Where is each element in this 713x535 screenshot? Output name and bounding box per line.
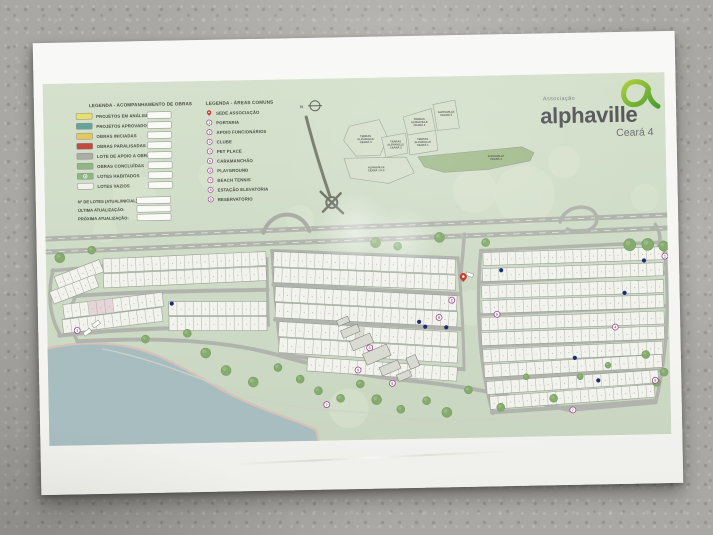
tree: [660, 368, 668, 376]
tree: [550, 394, 558, 402]
legend-areas-label: CLUBE: [217, 139, 232, 144]
legend-obras-label: LOTES HABITADOS: [97, 173, 139, 179]
tree: [497, 403, 505, 411]
tree: [372, 395, 382, 405]
tree: [434, 232, 444, 242]
area-marker-number: 8: [438, 316, 440, 320]
area-marker-number: 5: [496, 313, 498, 317]
tree: [314, 387, 322, 395]
legend-circle-number: 4: [209, 150, 211, 154]
legend-obras-label: LOTES VAZIOS: [97, 183, 130, 189]
legend-circle-number: 9: [210, 198, 212, 202]
legend-circle-number: 3: [209, 140, 211, 144]
site-plan-map: NTERRASALPHAVILLECEARÁ 3TERRASALPHAVILLE…: [43, 72, 672, 446]
overview-parcel-label: ALPHAVILLECEARÁ 1 E 2: [368, 165, 385, 172]
legend-areas-label: APOIO FUNCIONÁRIOS: [216, 129, 266, 135]
area-marker-number: 2: [451, 298, 453, 302]
printed-map-sheet: NTERRASALPHAVILLECEARÁ 3TERRASALPHAVILLE…: [33, 31, 684, 495]
area-marker-number: 6: [391, 382, 393, 386]
legend-areas-label: RESERVATÓRIO: [218, 196, 254, 202]
legend-swatch: [76, 123, 92, 129]
tree: [464, 386, 472, 394]
legend-obras-label: PROJETOS EM ANÁLISE: [96, 113, 149, 119]
tree: [642, 350, 650, 358]
legend-field-label: PRÓXIMA ATUALIZAÇÃO:: [78, 215, 129, 221]
tree: [88, 246, 96, 254]
tree: [523, 374, 529, 380]
legend-areas-label: BEACH TENNIS: [217, 177, 251, 183]
legend-areas-label: SEDE ASSOCIAÇÃO: [216, 110, 260, 116]
tree: [397, 405, 405, 413]
map-print-area: NTERRASALPHAVILLECEARÁ 3TERRASALPHAVILLE…: [43, 72, 672, 446]
area-marker-number: 5: [357, 368, 359, 372]
legend-circle-number: 5: [209, 159, 211, 163]
area-marker-number: 4: [614, 325, 616, 329]
legend-swatch: [76, 113, 92, 119]
tree: [356, 380, 364, 388]
legend-circle-number: 7: [209, 178, 211, 182]
legend-count-box: [148, 142, 172, 149]
tree: [183, 329, 191, 337]
alameda: [267, 259, 268, 325]
lot-block: [169, 316, 267, 330]
legend-areas-label: CARAMANCHÃO: [217, 158, 254, 164]
legend-field-box: [137, 197, 171, 204]
legend-count-box: [148, 172, 172, 179]
tree: [642, 238, 654, 250]
legend-count-box: [147, 132, 171, 139]
legend-count-box: [148, 162, 172, 169]
legend-obras-label: OBRAS CONCLUÍDAS: [97, 163, 144, 169]
area-marker-number: 9: [654, 379, 656, 383]
tree: [371, 238, 381, 248]
legend-circle-number: 6: [209, 169, 211, 173]
photo-of-site-plan: NTERRASALPHAVILLECEARÁ 3TERRASALPHAVILLE…: [0, 0, 713, 535]
area-marker-number: 3: [369, 346, 371, 350]
tree: [659, 241, 669, 251]
logo-association-label: Associação: [543, 96, 575, 103]
tree: [221, 365, 231, 375]
area-marker-number: 1: [76, 329, 78, 333]
legend-obras-label: LOTE DE APOIO A OBRA: [97, 153, 150, 159]
legend-areas-label: PET PLACE: [217, 149, 242, 154]
tree: [423, 397, 431, 405]
area-marker-number: 1: [664, 254, 666, 258]
tree: [482, 238, 490, 246]
logo-region-label: Ceará 4: [616, 126, 654, 139]
legend-areas-label: PLAYGROUND: [217, 168, 248, 174]
legend-areas-label: PORTARIA: [216, 120, 239, 125]
north-label: N: [300, 104, 303, 109]
tree: [141, 335, 149, 343]
legend-count-box: [148, 152, 172, 159]
tree: [577, 374, 583, 380]
legend-field-label: ÚLTIMA ATUALIZAÇÃO:: [78, 207, 125, 213]
legend-obras-label: OBRAS PARALISADAS: [97, 143, 146, 149]
legend-swatch: [77, 183, 93, 189]
legend-circle-number: 8: [210, 188, 212, 192]
legend-obras-label: PROJETOS APROVADOS: [96, 123, 150, 129]
tree: [605, 362, 611, 368]
legend-swatch: [77, 163, 93, 169]
legend-count-box: [147, 112, 171, 119]
legend-circle-number: 1: [208, 121, 210, 125]
legend-count-box: [147, 122, 171, 129]
tree: [55, 253, 65, 263]
tree: [337, 394, 345, 402]
tree: [274, 363, 282, 371]
legend-areas-label: ESTAÇÃO ELEVATÓRIA: [218, 187, 269, 193]
legend-obras-label: OBRAS INICIADAS: [96, 133, 136, 139]
tree: [248, 377, 258, 387]
tree: [394, 242, 402, 250]
tree: [201, 348, 211, 358]
tree: [442, 407, 452, 417]
legend-swatch: [77, 143, 93, 149]
legend-count-box: [148, 182, 172, 189]
logo-brand-wordmark: alphaville: [540, 102, 638, 129]
legend-field-box: [137, 214, 171, 221]
tree: [296, 375, 304, 383]
legend-areas-title: LEGENDA - ÁREAS COMUNS: [206, 99, 274, 106]
legend-circle-number: 2: [209, 130, 211, 134]
tree: [624, 239, 636, 251]
lot-block: [169, 301, 267, 315]
paper-crease: [231, 450, 511, 465]
legend-field-box: [137, 205, 171, 212]
legend-swatch: [77, 153, 93, 159]
legend-swatch: [76, 133, 92, 139]
area-marker-number: 7: [572, 408, 574, 412]
area-marker-number: 7: [326, 403, 328, 407]
